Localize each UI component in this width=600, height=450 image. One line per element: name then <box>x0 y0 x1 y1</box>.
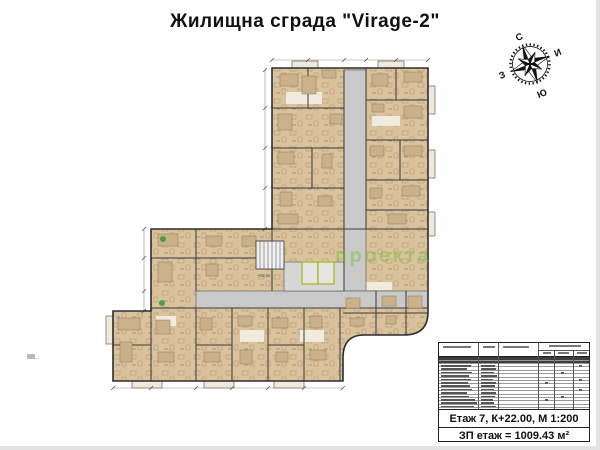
room-whiteout <box>240 330 264 342</box>
row-label-bar <box>441 389 472 391</box>
furniture-rect <box>404 72 422 82</box>
balcony <box>428 150 435 178</box>
sheet-edge-bottom <box>0 446 600 450</box>
legend-header-text-bar <box>443 346 471 348</box>
furniture-rect <box>158 352 174 362</box>
row-label-bar <box>441 382 468 384</box>
row-area-bar <box>481 382 496 384</box>
row-area-bar <box>481 375 497 377</box>
legend-table: Етаж 7, К+22.00, М 1:200 ЗП етаж = 1009.… <box>438 342 590 442</box>
floor-level-scale-text: Етаж 7, К+22.00, М 1:200 <box>439 409 589 427</box>
furniture-rect <box>278 114 292 130</box>
legend-header-text-bar <box>558 352 569 354</box>
furniture-rect <box>402 186 420 196</box>
legend-subcolumn-line <box>554 350 555 409</box>
furniture-rect <box>240 350 252 364</box>
legend-header-text-bar <box>483 346 495 348</box>
furniture-rect <box>370 188 382 198</box>
drawing-sheet: Жилищна сграда "Virage-2" +22.00проекта … <box>0 0 600 450</box>
furniture-rect <box>156 320 170 334</box>
row-label-bar <box>441 365 471 367</box>
row-area-bar <box>481 402 494 404</box>
balcony <box>428 212 435 236</box>
row-area-bar <box>481 365 495 367</box>
furniture-rect <box>302 76 316 94</box>
plant-symbol <box>159 300 165 306</box>
furniture-rect <box>350 318 364 326</box>
floor-area-text: ЗП етаж = 1009.43 м² <box>439 427 589 443</box>
row-area-bar <box>481 385 495 387</box>
furniture-rect <box>370 146 384 156</box>
legend-header-text-bar <box>549 345 581 347</box>
furniture-rect <box>280 74 298 86</box>
furniture-rect <box>318 196 332 206</box>
furniture-rect <box>310 316 322 328</box>
row-label-bar <box>441 399 475 401</box>
furniture-rect <box>310 350 326 360</box>
legend-table-row <box>439 405 589 408</box>
legend-column-line <box>478 343 479 409</box>
sheet-edge-right <box>596 0 600 450</box>
row-area-bar <box>481 396 495 398</box>
row-label-bar <box>441 402 477 404</box>
furniture-rect <box>404 106 422 118</box>
furniture-rect <box>206 264 218 276</box>
row-label-bar <box>441 368 467 370</box>
legend-header-text-bar <box>577 352 587 354</box>
furniture-rect <box>330 114 342 124</box>
room-whiteout <box>372 116 400 126</box>
furniture-rect <box>386 316 396 324</box>
furniture-rect <box>206 236 222 246</box>
row-area-bar <box>481 392 496 394</box>
row-label-bar <box>441 406 474 408</box>
row-area-bar <box>481 372 494 374</box>
row-label-bar <box>441 396 469 398</box>
furniture-rect <box>276 352 288 362</box>
furniture-rect <box>278 214 298 224</box>
furniture-rect <box>404 146 422 156</box>
furniture-rect <box>272 318 288 328</box>
furniture-rect <box>372 104 384 112</box>
legend-header-divider <box>538 350 589 351</box>
furniture-rect <box>346 298 360 308</box>
row-label-bar <box>441 385 470 387</box>
elevator-shaft <box>318 262 334 284</box>
furniture-rect <box>322 70 336 78</box>
green-watermark: проекта <box>335 245 431 267</box>
row-area-bar <box>481 406 496 408</box>
furniture-rect <box>322 154 332 168</box>
stamp-smudge <box>27 354 35 359</box>
furniture-rect <box>238 316 252 326</box>
furniture-rect <box>204 352 220 362</box>
row-label-bar <box>441 375 469 377</box>
balcony <box>274 381 304 388</box>
row-area-bar <box>481 389 494 391</box>
legend-column-line <box>498 343 499 409</box>
level-label: +22.00 <box>258 273 271 278</box>
furniture-rect <box>280 192 292 206</box>
compass-rose: С И Ю З <box>490 22 570 106</box>
furniture-rect <box>372 74 388 86</box>
furniture-rect <box>388 214 406 224</box>
furniture-rect <box>242 236 256 246</box>
row-area-bar <box>481 368 496 370</box>
legend-table-body <box>439 357 589 408</box>
compass-label-north: С <box>514 31 525 44</box>
legend-header-text-bar <box>543 352 551 354</box>
furniture-rect <box>408 296 422 308</box>
balcony <box>132 381 162 388</box>
furniture-rect <box>382 296 396 306</box>
row-label-bar <box>441 379 471 381</box>
legend-subcolumn-line <box>573 350 574 409</box>
compass-label-west: З <box>498 69 508 81</box>
furniture-rect <box>120 342 132 362</box>
row-area-bar <box>481 399 493 401</box>
compass-label-south: Ю <box>536 87 549 101</box>
furniture-rect <box>200 318 212 330</box>
row-area-bar <box>481 379 493 381</box>
plant-symbol <box>160 236 166 242</box>
furniture-rect <box>158 262 172 282</box>
compass-label-east: И <box>553 47 564 60</box>
balcony <box>106 316 113 344</box>
furniture-rect <box>118 318 140 330</box>
balcony <box>378 61 404 68</box>
legend-column-line <box>538 343 539 409</box>
balcony <box>292 61 318 68</box>
balcony <box>428 86 435 114</box>
elevator-shaft <box>302 262 318 284</box>
balcony <box>204 381 234 388</box>
row-label-bar <box>441 372 472 374</box>
furniture-rect <box>278 152 294 164</box>
row-label-bar <box>441 392 467 394</box>
legend-header-text-bar <box>503 346 529 348</box>
